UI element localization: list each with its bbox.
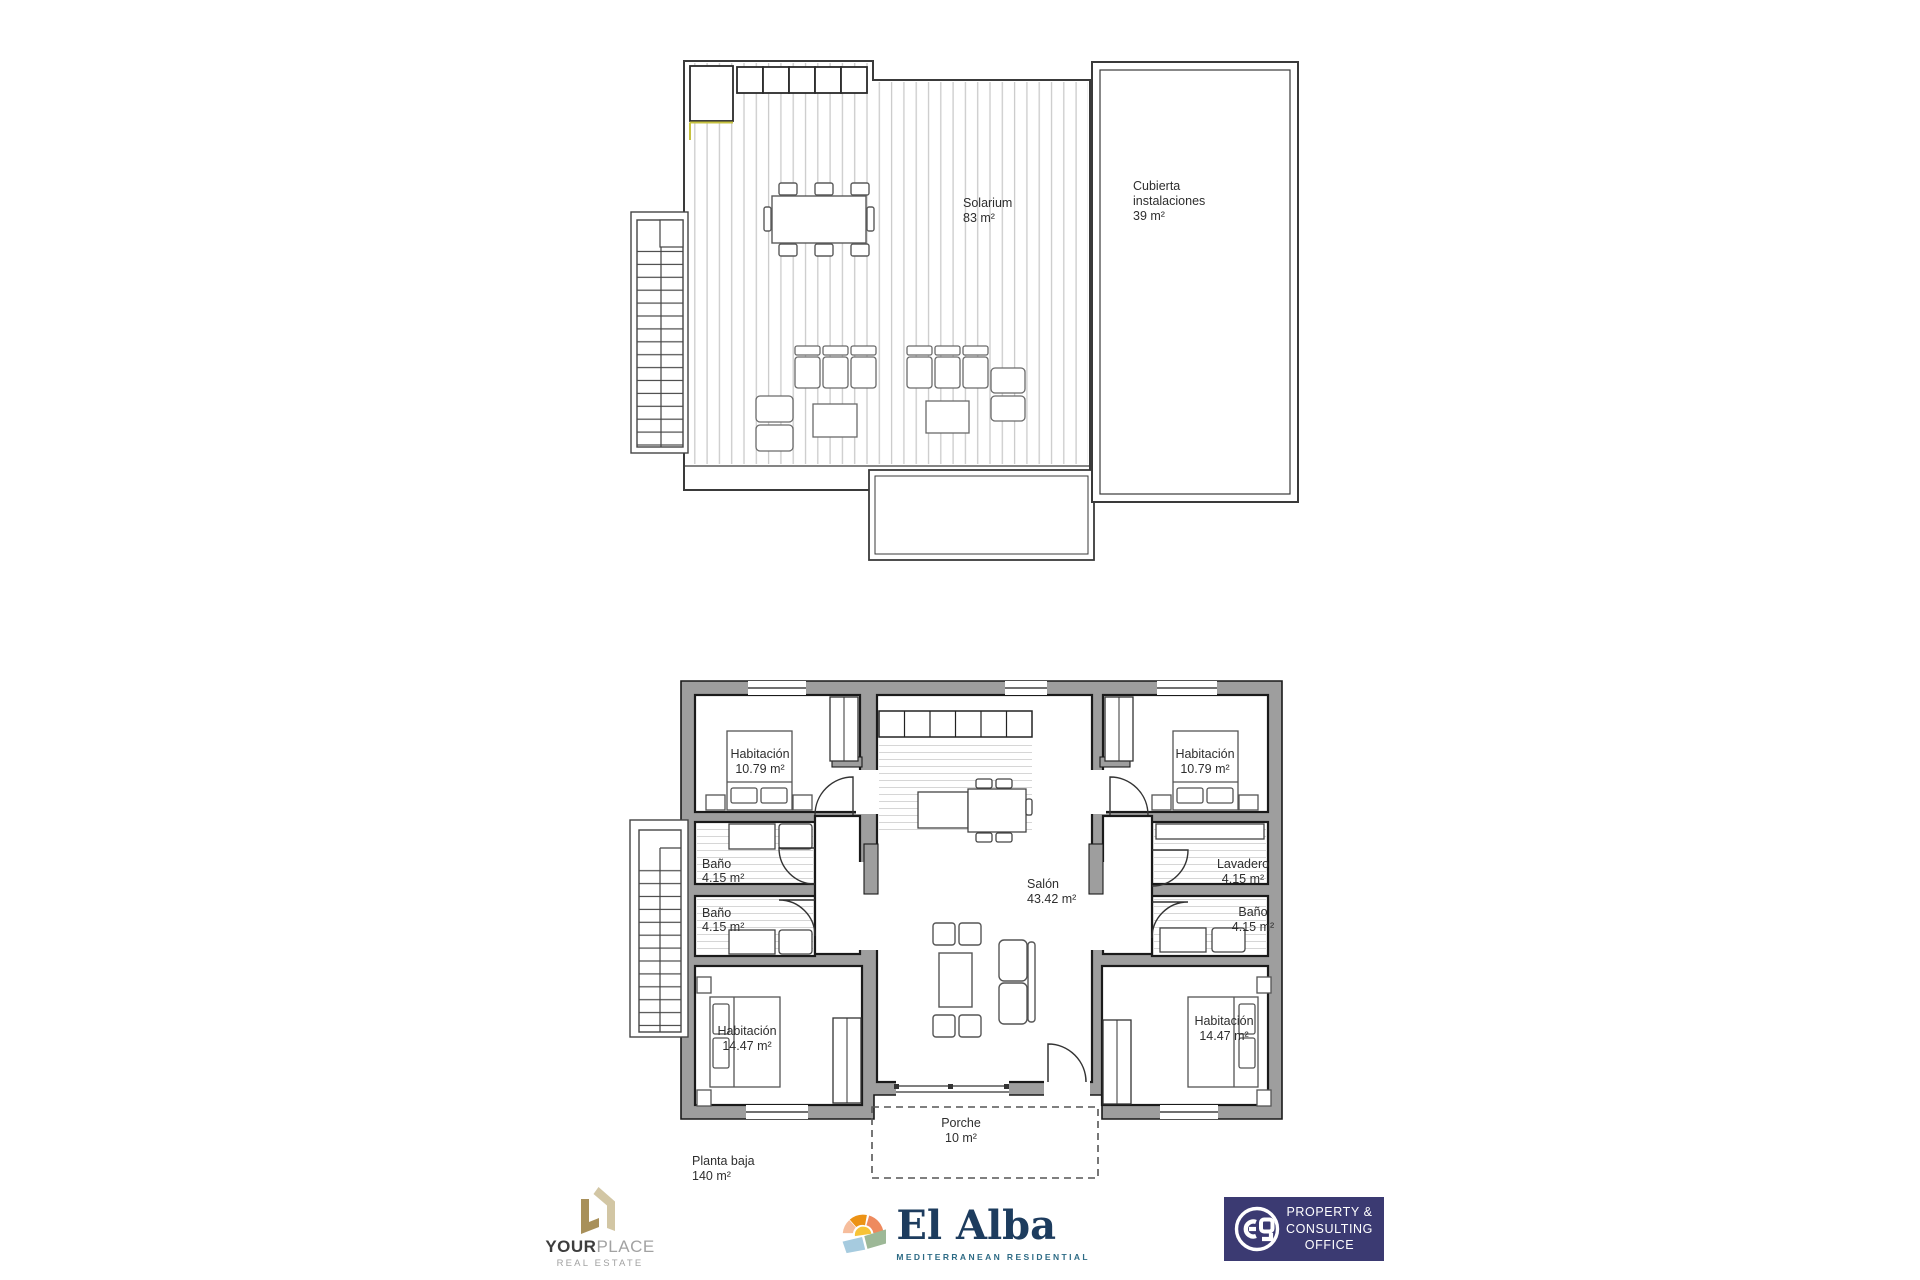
porche-outline: [872, 1107, 1098, 1178]
floor-area: 140 m²: [692, 1169, 731, 1183]
solarium-label: Solarium: [963, 196, 1012, 210]
bedroom-tr-area: 10.79 m²: [1180, 762, 1229, 776]
bano-r-label: Baño: [1238, 905, 1267, 919]
cubierta-label-1: Cubierta: [1133, 179, 1180, 193]
pergola-slats: [737, 67, 867, 93]
cubierta-area: 39 m²: [1133, 209, 1165, 223]
ground-floor-plan: Habitación 10.79 m² Habitación 10.79 m² …: [630, 681, 1282, 1183]
yourplace-logo: YOURPLACE REAL ESTATE: [538, 1186, 662, 1278]
exterior-stairs-roof: [631, 212, 688, 453]
floor-name: Planta baja: [692, 1154, 755, 1168]
bano-l1-label: Baño: [702, 857, 731, 871]
bedroom-tl-area: 10.79 m²: [735, 762, 784, 776]
bano-l1-vanity: [729, 824, 775, 849]
exterior-stairs-ground: [630, 820, 688, 1037]
elalba-sunrise-icon: [840, 1196, 886, 1272]
bedroom-bl-area: 14.47 m²: [722, 1039, 771, 1053]
hall-pocket-left: [815, 816, 860, 954]
floorplan-sheet: Solarium 83 m² Cubierta instalaciones 39…: [0, 0, 1920, 1280]
yourplace-brand-bold: YOUR: [545, 1237, 596, 1256]
kitchen: [879, 711, 1032, 842]
bedroom-tr-label: Habitación: [1175, 747, 1234, 761]
solarium-plan: Solarium 83 m² Cubierta instalaciones 39…: [631, 61, 1298, 560]
floorplans-canvas: Solarium 83 m² Cubierta instalaciones 39…: [0, 0, 1920, 1280]
dining-set: [764, 183, 874, 256]
bano-l1-toilet: [779, 824, 812, 849]
cubierta-label-2: instalaciones: [1133, 194, 1205, 208]
kitchen-island: [968, 789, 1026, 832]
lavadero-area: 4.15 m²: [1222, 872, 1264, 886]
porche-area: 10 m²: [945, 1131, 977, 1145]
pco-line-3: OFFICE: [1305, 1237, 1354, 1254]
elalba-name: El Alba: [896, 1206, 1090, 1246]
bedroom-br-area: 14.47 m²: [1199, 1029, 1248, 1043]
solarium-storage-box: [690, 66, 733, 121]
bedroom-br-label: Habitación: [1194, 1014, 1253, 1028]
bano-l2-label: Baño: [702, 906, 731, 920]
salon-label: Salón: [1027, 877, 1059, 891]
lavadero-label: Lavadero: [1217, 857, 1269, 871]
pco-text: PROPERTY & CONSULTING OFFICE: [1283, 1204, 1376, 1254]
bano-r-vanity: [1160, 928, 1206, 952]
pco-line-1: PROPERTY &: [1286, 1204, 1372, 1221]
cubierta-box: [1092, 62, 1298, 502]
yourplace-brand: YOURPLACE: [545, 1238, 654, 1255]
roof-protrusion: [869, 470, 1094, 560]
lavadero-counter: [1156, 824, 1264, 839]
elalba-text: El Alba MEDITERRANEAN RESIDENTIAL: [896, 1206, 1090, 1262]
bano-l2-toilet: [779, 930, 812, 954]
pco-monogram-icon: [1231, 1203, 1283, 1255]
bano-r-area: 4.15 m²: [1232, 920, 1274, 934]
yourplace-brand-light: PLACE: [596, 1237, 654, 1256]
salon-area: 43.42 m²: [1027, 892, 1076, 906]
bano-l1-area: 4.15 m²: [702, 871, 744, 885]
yourplace-tagline: REAL ESTATE: [557, 1258, 644, 1269]
yourplace-house-icon: [577, 1186, 623, 1236]
elalba-tagline: MEDITERRANEAN RESIDENTIAL: [896, 1252, 1090, 1262]
pco-line-2: CONSULTING: [1286, 1221, 1373, 1238]
bano-l2-area: 4.15 m²: [702, 920, 744, 934]
kitchen-table: [918, 792, 968, 828]
hall-pocket-right: [1103, 816, 1152, 954]
bedroom-tl-label: Habitación: [730, 747, 789, 761]
pco-logo: PROPERTY & CONSULTING OFFICE: [1224, 1197, 1384, 1261]
porche-label: Porche: [941, 1116, 981, 1130]
bedroom-bl-label: Habitación: [717, 1024, 776, 1038]
porch-sliding-door: [894, 1080, 1009, 1097]
solarium-deck: [686, 63, 1088, 464]
elalba-logo: El Alba MEDITERRANEAN RESIDENTIAL: [840, 1194, 1090, 1274]
solarium-area: 83 m²: [963, 211, 995, 225]
